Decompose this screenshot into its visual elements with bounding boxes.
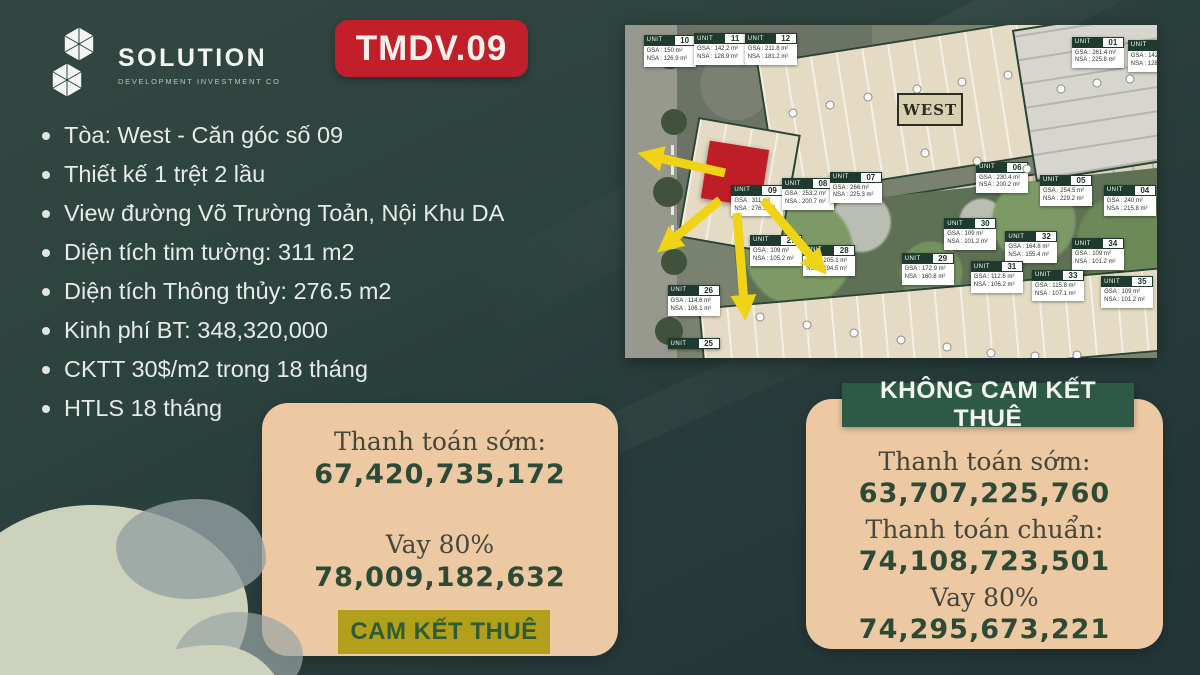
unit-tag: UNIT35GSA : 109 m²NSA : 101.2 m² [1101,276,1153,308]
unit-tag: UNIT02GSA : 142.2 m²NSA : 128.9 m² [1128,40,1157,72]
price-value: 74,295,673,221 [806,614,1163,645]
price-label: Vay 80% [262,530,618,559]
unit-tag: UNIT32GSA : 164.8 m²NSA : 155.4 m² [1005,231,1057,263]
unit-tag: UNIT31GSA : 112.6 m²NSA : 106.2 m² [971,261,1023,293]
rent-committed-badge: CAM KẾT THUÊ [338,610,550,654]
feature-list: Tòa: West - Căn góc số 09 Thiết kế 1 trệ… [36,116,621,428]
unit-tag: UNIT10GSA : 150 m²NSA : 126.9 m² [644,35,696,67]
unit-tag: UNIT33GSA : 115.8 m²NSA : 107.1 m² [1032,270,1084,302]
bullet-dot-icon [42,132,50,140]
price-label: Vay 80% [806,583,1163,612]
unit-tag: UNIT01GSA : 261.4 m²NSA : 225.8 m² [1072,37,1124,69]
unit-tag: UNIT26GSA : 114.6 m²NSA : 106.1 m² [668,285,720,317]
feature-item: CKTT 30$/m2 trong 18 tháng [36,350,621,389]
feature-item: Diện tích Thông thủy: 276.5 m2 [36,272,621,311]
slide-background: SOLUTION DEVELOPMENT INVESTMENT CO TMDV.… [0,0,1200,675]
bullet-dot-icon [42,171,50,179]
tree [661,109,687,135]
hexagon-logo-icon [42,24,104,105]
unit-tag: UNIT34GSA : 109 m²NSA : 101.2 m² [1072,238,1124,270]
unit-tag: UNIT12GSA : 211.8 m²NSA : 181.2 m² [745,33,797,65]
west-label: WEST [897,93,963,126]
pricing-card-noncommitted: KHÔNG CAM KẾT THUÊ Thanh toán sớm: 63,70… [806,399,1163,649]
feature-item: View đường Võ Trường Toản, Nội Khu DA [36,194,621,233]
price-label: Thanh toán sớm: [806,447,1163,476]
unit-tag: UNIT05GSA : 254.5 m²NSA : 229.2 m² [1040,175,1092,207]
price-value: 67,420,735,172 [262,459,618,490]
watercolor-splash [0,505,248,675]
pricing-card-committed: Thanh toán sớm: 67,420,735,172 Vay 80% 7… [262,403,618,656]
unit-tag: UNIT28GSA : 205.1 m²NSA : 194.5 m² [803,245,855,277]
tree [661,249,687,275]
feature-item: Tòa: West - Căn góc số 09 [36,116,621,155]
company-subtitle: DEVELOPMENT INVESTMENT CO [118,77,281,86]
company-logo: SOLUTION DEVELOPMENT INVESTMENT CO [42,24,281,105]
unit-tag: UNIT29GSA : 172.9 m²NSA : 160.8 m² [902,253,954,285]
bullet-dot-icon [42,405,50,413]
unit-tag: UNIT08GSA : 253.2 m²NSA : 200.7 m² [782,178,834,210]
price-value: 74,108,723,501 [806,546,1163,577]
price-value: 78,009,182,632 [262,562,618,593]
bullet-dot-icon [42,327,50,335]
company-name: SOLUTION [118,44,281,73]
unit-tag: UNIT30GSA : 109 m²NSA : 101.2 m² [944,218,996,250]
unit-tag: UNIT06GSA : 230.4 m²NSA : 200.2 m² [976,162,1028,194]
tree [653,177,683,207]
bullet-dot-icon [42,288,50,296]
unit-tag: UNIT25 [668,338,720,349]
bullet-dot-icon [42,210,50,218]
bullet-dot-icon [42,366,50,374]
price-value: 63,707,225,760 [806,478,1163,509]
feature-item: Kinh phí BT: 348,320,000 [36,311,621,350]
bullet-dot-icon [42,249,50,257]
unit-tag: UNIT04GSA : 240 m²NSA : 215.8 m² [1104,185,1156,217]
unit-code-badge: TMDV.09 [335,20,528,77]
unit-tag: UNIT11GSA : 142.2 m²NSA : 128.9 m² [694,33,746,65]
unit-tag: UNIT27GSA : 109 m²NSA : 105.2 m² [750,235,802,267]
price-label: Thanh toán chuẩn: [806,515,1163,544]
unit-tag: UNIT09GSA : 311 m²NSA : 276.5 m² [731,185,783,217]
feature-item: Thiết kế 1 trệt 2 lầu [36,155,621,194]
price-label: Thanh toán sớm: [262,427,618,456]
no-rent-commitment-badge: KHÔNG CAM KẾT THUÊ [842,383,1134,427]
feature-item: Diện tích tim tường: 311 m2 [36,233,621,272]
floorplan-image: WEST UNIT1 [625,25,1157,358]
unit-tag: UNIT07GSA : 266 m²NSA : 225.3 m² [830,172,882,204]
